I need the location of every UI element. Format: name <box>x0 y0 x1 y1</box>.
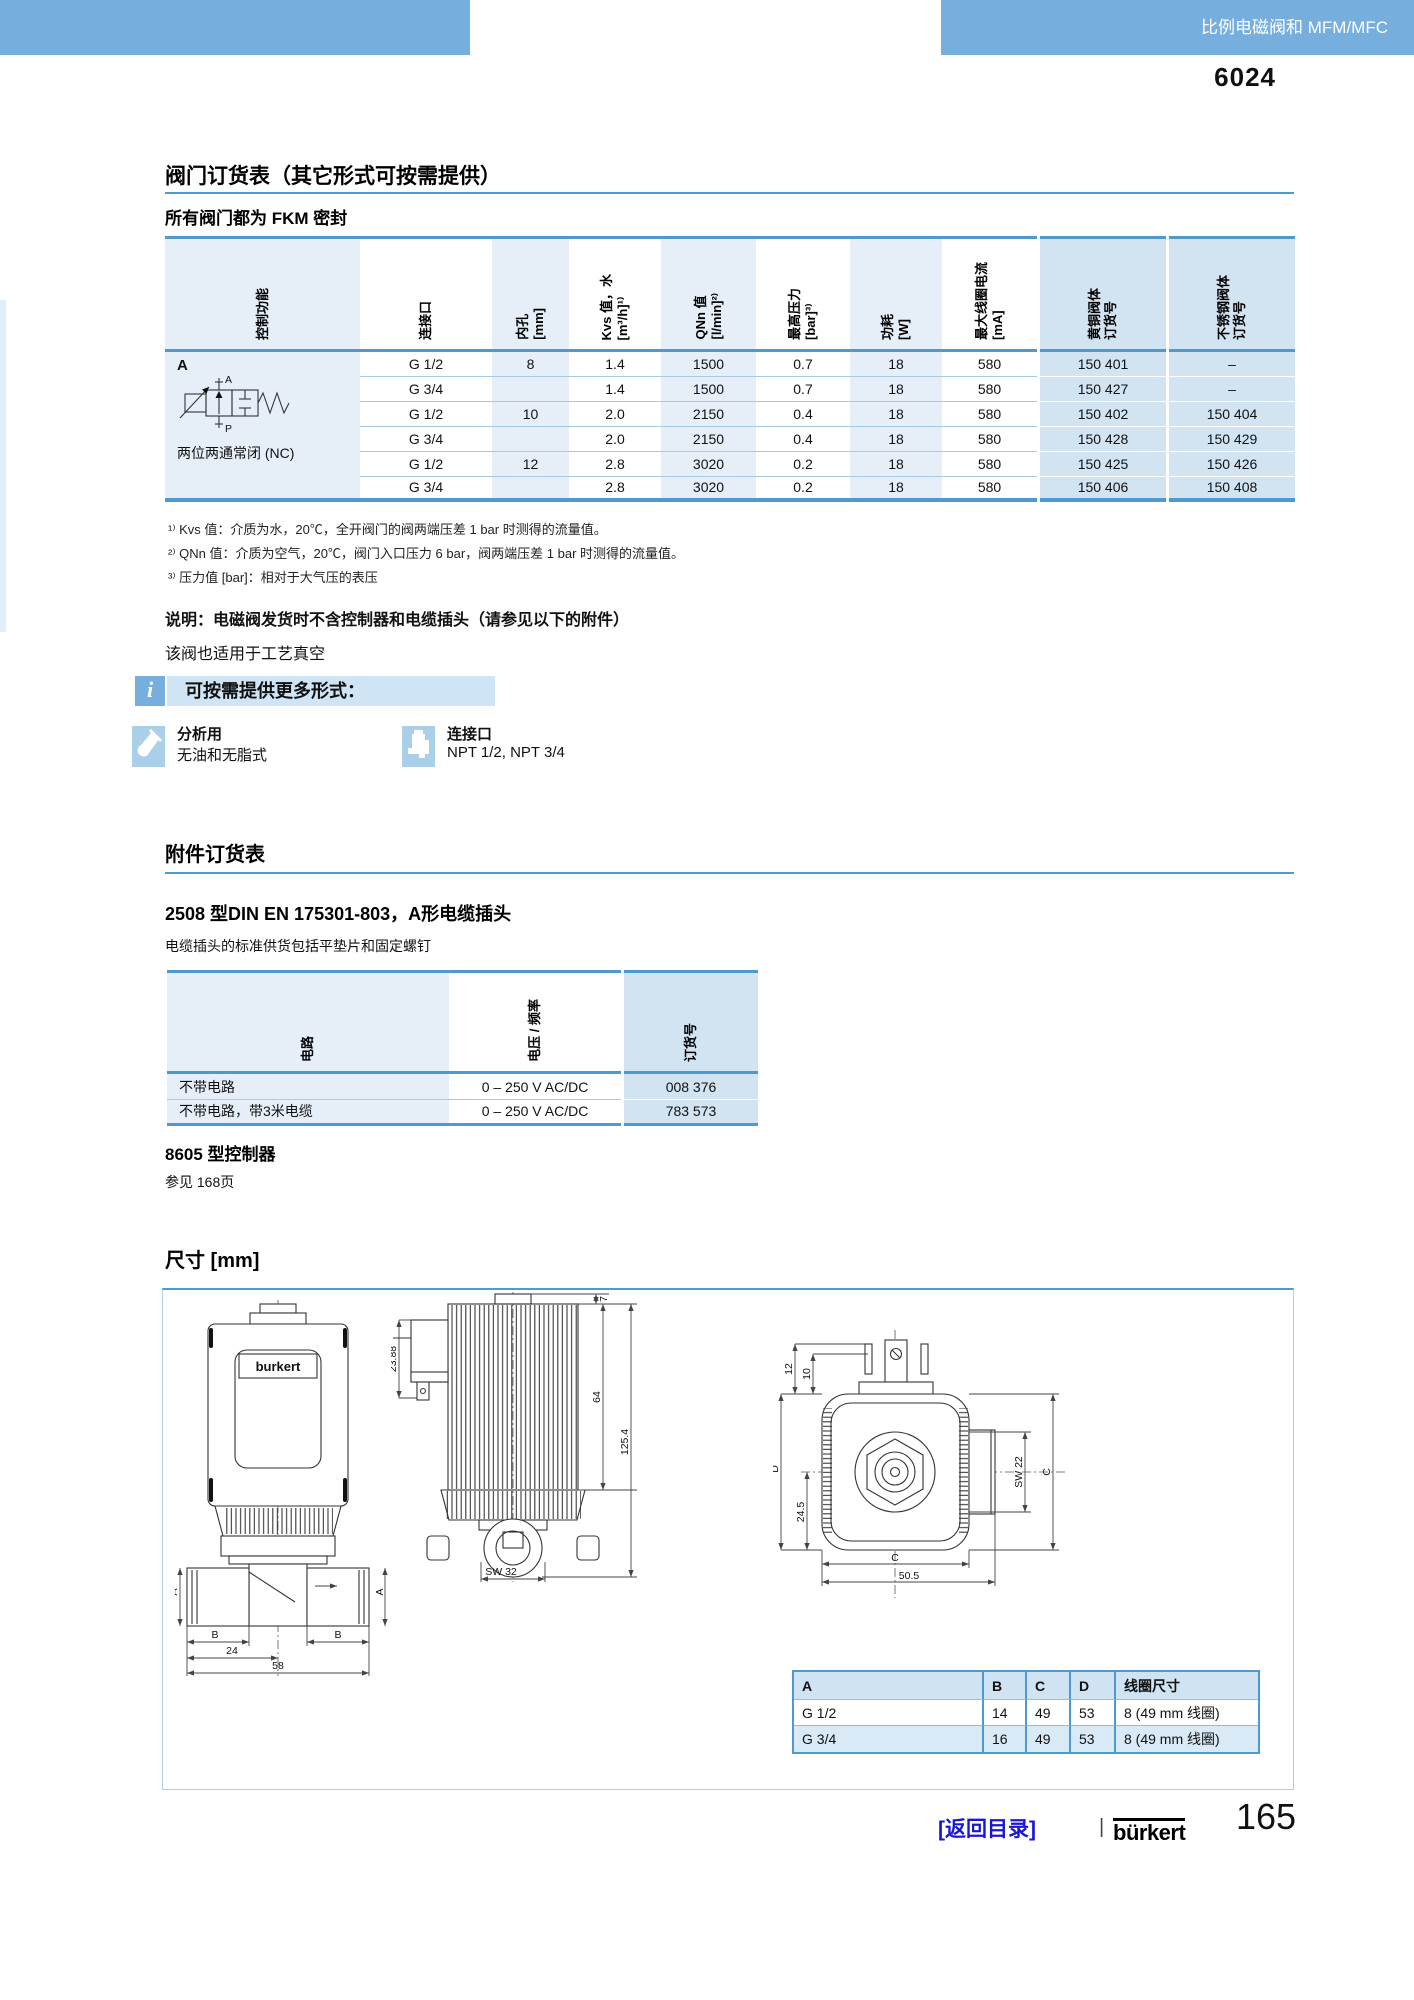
valve-cell: 150 404 <box>1169 402 1295 427</box>
valve-section-title: 阀门订货表（其它形式可按需提供） <box>165 160 501 190</box>
valve-cell: 580 <box>942 402 1037 427</box>
front-view-drawing: burkert A A B B <box>175 1300 390 1680</box>
valve-cell: 2150 <box>661 427 756 452</box>
analysis-icon <box>132 726 165 767</box>
footnote-2: ²⁾ QNn 值：介质为空气，20℃，阀门入口压力 6 bar，阀两端压差 1 … <box>168 542 684 566</box>
plug-cell: 不带电路 <box>167 1074 449 1100</box>
valve-cell: – <box>1169 377 1295 402</box>
svg-text:B: B <box>211 1629 218 1641</box>
valve-cell <box>492 377 569 402</box>
svg-text:23.88: 23.88 <box>391 1346 399 1372</box>
dim-cell: 53 <box>1071 1700 1116 1726</box>
svg-text:7: 7 <box>598 1296 610 1302</box>
valve-col-header-3: 内孔 [mm] <box>492 236 569 352</box>
valve-cell: 12 <box>492 452 569 477</box>
banner-left-segment <box>0 0 470 55</box>
valve-cell <box>492 477 569 502</box>
svg-text:SW 32: SW 32 <box>485 1566 517 1578</box>
controller-title: 8605 型控制器 <box>165 1140 276 1165</box>
dim-cell: G 3/4 <box>794 1726 984 1752</box>
valve-section-rule <box>165 192 1294 194</box>
valve-symbol: A P <box>177 374 337 436</box>
svg-text:P: P <box>225 423 232 435</box>
note-line-2: 该阀也适用于工艺真空 <box>165 640 325 664</box>
valve-cell: 18 <box>850 377 942 402</box>
valve-cell: 150 425 <box>1040 452 1166 477</box>
top-view-drawing: 12 10 D 24.5 SW 22 C C <box>773 1324 1073 1604</box>
valve-cell: 0.7 <box>756 377 850 402</box>
port-connection-icon <box>402 726 435 767</box>
valve-cell: 2150 <box>661 402 756 427</box>
valve-cell: 18 <box>850 477 942 502</box>
svg-text:C: C <box>891 1552 899 1564</box>
info-strip-label: 可按需提供更多形式： <box>167 676 495 706</box>
control-function-code: A <box>177 357 348 374</box>
dimensions-box: burkert A A B B <box>162 1288 1294 1790</box>
svg-text:64: 64 <box>591 1391 603 1403</box>
valve-cell: 150 427 <box>1040 377 1166 402</box>
dim-col-header: D <box>1071 1672 1116 1700</box>
valve-cell: 0.2 <box>756 452 850 477</box>
valve-cell: 0.4 <box>756 402 850 427</box>
valve-col-header-10: 不锈钢阀体 订货号 <box>1169 236 1295 352</box>
valve-cell: 8 <box>492 352 569 377</box>
valve-col-header-8: 最大线圈电流 [mA] <box>942 236 1037 352</box>
plug-desc: 电缆插头的标准供货包括平垫片和固定螺钉 <box>165 936 431 956</box>
valve-cell: 150 426 <box>1169 452 1295 477</box>
plug-cell: 783 573 <box>624 1100 758 1126</box>
plug-col-header-1: 电路 <box>167 970 449 1074</box>
accessories-section-title: 附件订货表 <box>165 838 265 867</box>
plug-cell: 008 376 <box>624 1074 758 1100</box>
svg-text:24: 24 <box>226 1645 238 1657</box>
valve-section-subtitle: 所有阀门都为 FKM 密封 <box>165 204 347 229</box>
plug-cell: 0 – 250 V AC/DC <box>449 1074 621 1100</box>
valve-col-header-2: 连接口 <box>360 236 492 352</box>
dim-cell: 49 <box>1027 1726 1071 1752</box>
back-to-contents-link[interactable]: [返回目录] <box>938 1813 1036 1843</box>
analysis-desc: 无油和无脂式 <box>177 744 267 765</box>
plug-cell: 不带电路，带3米电缆 <box>167 1100 449 1126</box>
valve-cell: 18 <box>850 402 942 427</box>
controller-ref: 参见 168页 <box>165 1172 234 1192</box>
burkert-logo: bürkert <box>1113 1818 1185 1845</box>
valve-cell: 150 408 <box>1169 477 1295 502</box>
side-view-drawing: 23.88 SW 32 7 64 125.4 <box>391 1292 656 1584</box>
svg-text:125.4: 125.4 <box>619 1429 631 1455</box>
dim-col-header: C <box>1027 1672 1071 1700</box>
valve-cell: – <box>1169 352 1295 377</box>
valve-cell: 18 <box>850 352 942 377</box>
dim-cell: 8 (49 mm 线圈) <box>1116 1700 1258 1726</box>
valve-cell: G 1/2 <box>360 402 492 427</box>
valve-cell: 2.8 <box>569 477 661 502</box>
valve-col-header-6: 最高压力 [bar]³⁾ <box>756 236 850 352</box>
valve-order-table: A A P 两位两通常闭 (NC) <box>165 236 1295 502</box>
valve-cell: 580 <box>942 452 1037 477</box>
svg-text:C: C <box>1041 1468 1053 1476</box>
svg-text:24.5: 24.5 <box>795 1502 807 1523</box>
svg-text:58: 58 <box>272 1660 284 1672</box>
valve-cell: 2.8 <box>569 452 661 477</box>
valve-cell: 10 <box>492 402 569 427</box>
valve-cell: 3020 <box>661 477 756 502</box>
type-number: 6024 <box>1214 62 1276 93</box>
footnotes: ¹⁾ Kvs 值：介质为水，20℃，全开阀门的阀两端压差 1 bar 时测得的流… <box>168 518 684 590</box>
dim-cell: 49 <box>1027 1700 1071 1726</box>
svg-text:12: 12 <box>783 1363 795 1375</box>
svg-text:10: 10 <box>801 1368 813 1380</box>
valve-cell: 2.0 <box>569 402 661 427</box>
valve-cell: G 1/2 <box>360 352 492 377</box>
valve-cell: 580 <box>942 377 1037 402</box>
valve-cell: 1500 <box>661 352 756 377</box>
footnote-1: ¹⁾ Kvs 值：介质为水，20℃，全开阀门的阀两端压差 1 bar 时测得的流… <box>168 518 684 542</box>
svg-text:A: A <box>374 1588 386 1595</box>
accessories-section-rule <box>165 872 1294 874</box>
valve-cell: 580 <box>942 477 1037 502</box>
dim-cell: 8 (49 mm 线圈) <box>1116 1726 1258 1752</box>
valve-cell: G 3/4 <box>360 427 492 452</box>
valve-cell: 580 <box>942 352 1037 377</box>
control-function-cell: A A P 两位两通常闭 (NC) <box>165 352 360 502</box>
valve-col-header-4: Kvs 值，水 [m³/h]¹⁾ <box>569 236 661 352</box>
dimensions-table: ABCD线圈尺寸G 1/21449538 (49 mm 线圈)G 3/41649… <box>792 1670 1260 1754</box>
valve-cell: G 3/4 <box>360 477 492 502</box>
plug-cell: 0 – 250 V AC/DC <box>449 1100 621 1126</box>
valve-cell: 3020 <box>661 452 756 477</box>
control-function-caption: 两位两通常闭 (NC) <box>177 443 348 463</box>
valve-cell: 150 401 <box>1040 352 1166 377</box>
valve-cell: 0.7 <box>756 352 850 377</box>
dimensions-section-title: 尺寸 [mm] <box>165 1244 259 1273</box>
valve-cell: 150 429 <box>1169 427 1295 452</box>
valve-cell: 1.4 <box>569 352 661 377</box>
valve-cell: G 3/4 <box>360 377 492 402</box>
dim-cell: G 1/2 <box>794 1700 984 1726</box>
note-line-1: 说明：电磁阀发货时不含控制器和电缆插头（请参见以下的附件） <box>165 606 629 630</box>
plug-subtitle: 2508 型DIN EN 175301-803，A形电缆插头 <box>165 900 511 926</box>
footer-separator: | <box>1099 1816 1104 1839</box>
valve-cell: G 1/2 <box>360 452 492 477</box>
valve-cell: 150 406 <box>1040 477 1166 502</box>
dim-cell: 53 <box>1071 1726 1116 1752</box>
plug-col-header-3: 订货号 <box>624 970 758 1074</box>
dim-col-header: 线圈尺寸 <box>1116 1672 1258 1700</box>
valve-col-header-9: 黄铜阀体 订货号 <box>1040 236 1166 352</box>
valve-cell: 18 <box>850 427 942 452</box>
dim-col-header: A <box>794 1672 984 1700</box>
valve-cell: 0.4 <box>756 427 850 452</box>
port-connection-title: 连接口 <box>447 723 492 744</box>
dim-col-header: B <box>984 1672 1027 1700</box>
valve-cell: 150 402 <box>1040 402 1166 427</box>
page-edge-tab <box>0 300 6 632</box>
valve-cell: 1500 <box>661 377 756 402</box>
info-icon: i <box>135 676 165 706</box>
footnote-3: ³⁾ 压力值 [bar]：相对于大气压的表压 <box>168 566 684 590</box>
coil-brand-label: burkert <box>256 1359 301 1374</box>
valve-col-header-1: 控制功能 <box>165 236 360 352</box>
svg-text:SW 22: SW 22 <box>1013 1456 1025 1488</box>
valve-cell <box>492 427 569 452</box>
dim-cell: 16 <box>984 1726 1027 1752</box>
svg-text:A: A <box>225 374 232 386</box>
valve-cell: 150 428 <box>1040 427 1166 452</box>
analysis-title: 分析用 <box>177 723 222 744</box>
valve-cell: 580 <box>942 427 1037 452</box>
svg-text:A: A <box>175 1588 180 1595</box>
svg-text:B: B <box>334 1629 341 1641</box>
plug-order-table: 电路电压 / 频率订货号不带电路0 – 250 V AC/DC008 376不带… <box>167 970 758 1126</box>
svg-text:50.5: 50.5 <box>899 1570 920 1582</box>
valve-cell: 2.0 <box>569 427 661 452</box>
dim-cell: 14 <box>984 1700 1027 1726</box>
valve-col-header-5: QNn 值 [l/min]²⁾ <box>661 236 756 352</box>
page-number: 165 <box>1236 1796 1296 1838</box>
valve-col-header-7: 功耗 [W] <box>850 236 942 352</box>
svg-text:D: D <box>773 1465 781 1473</box>
plug-col-header-2: 电压 / 频率 <box>449 970 621 1074</box>
valve-cell: 0.2 <box>756 477 850 502</box>
datasheet-page: 比例电磁阀和 MFM/MFC 6024 阀门订货表（其它形式可按需提供） 所有阀… <box>0 0 1414 2000</box>
valve-cell: 18 <box>850 452 942 477</box>
valve-cell: 1.4 <box>569 377 661 402</box>
port-connection-desc: NPT 1/2, NPT 3/4 <box>447 744 565 761</box>
banner-category-label: 比例电磁阀和 MFM/MFC <box>941 0 1414 55</box>
